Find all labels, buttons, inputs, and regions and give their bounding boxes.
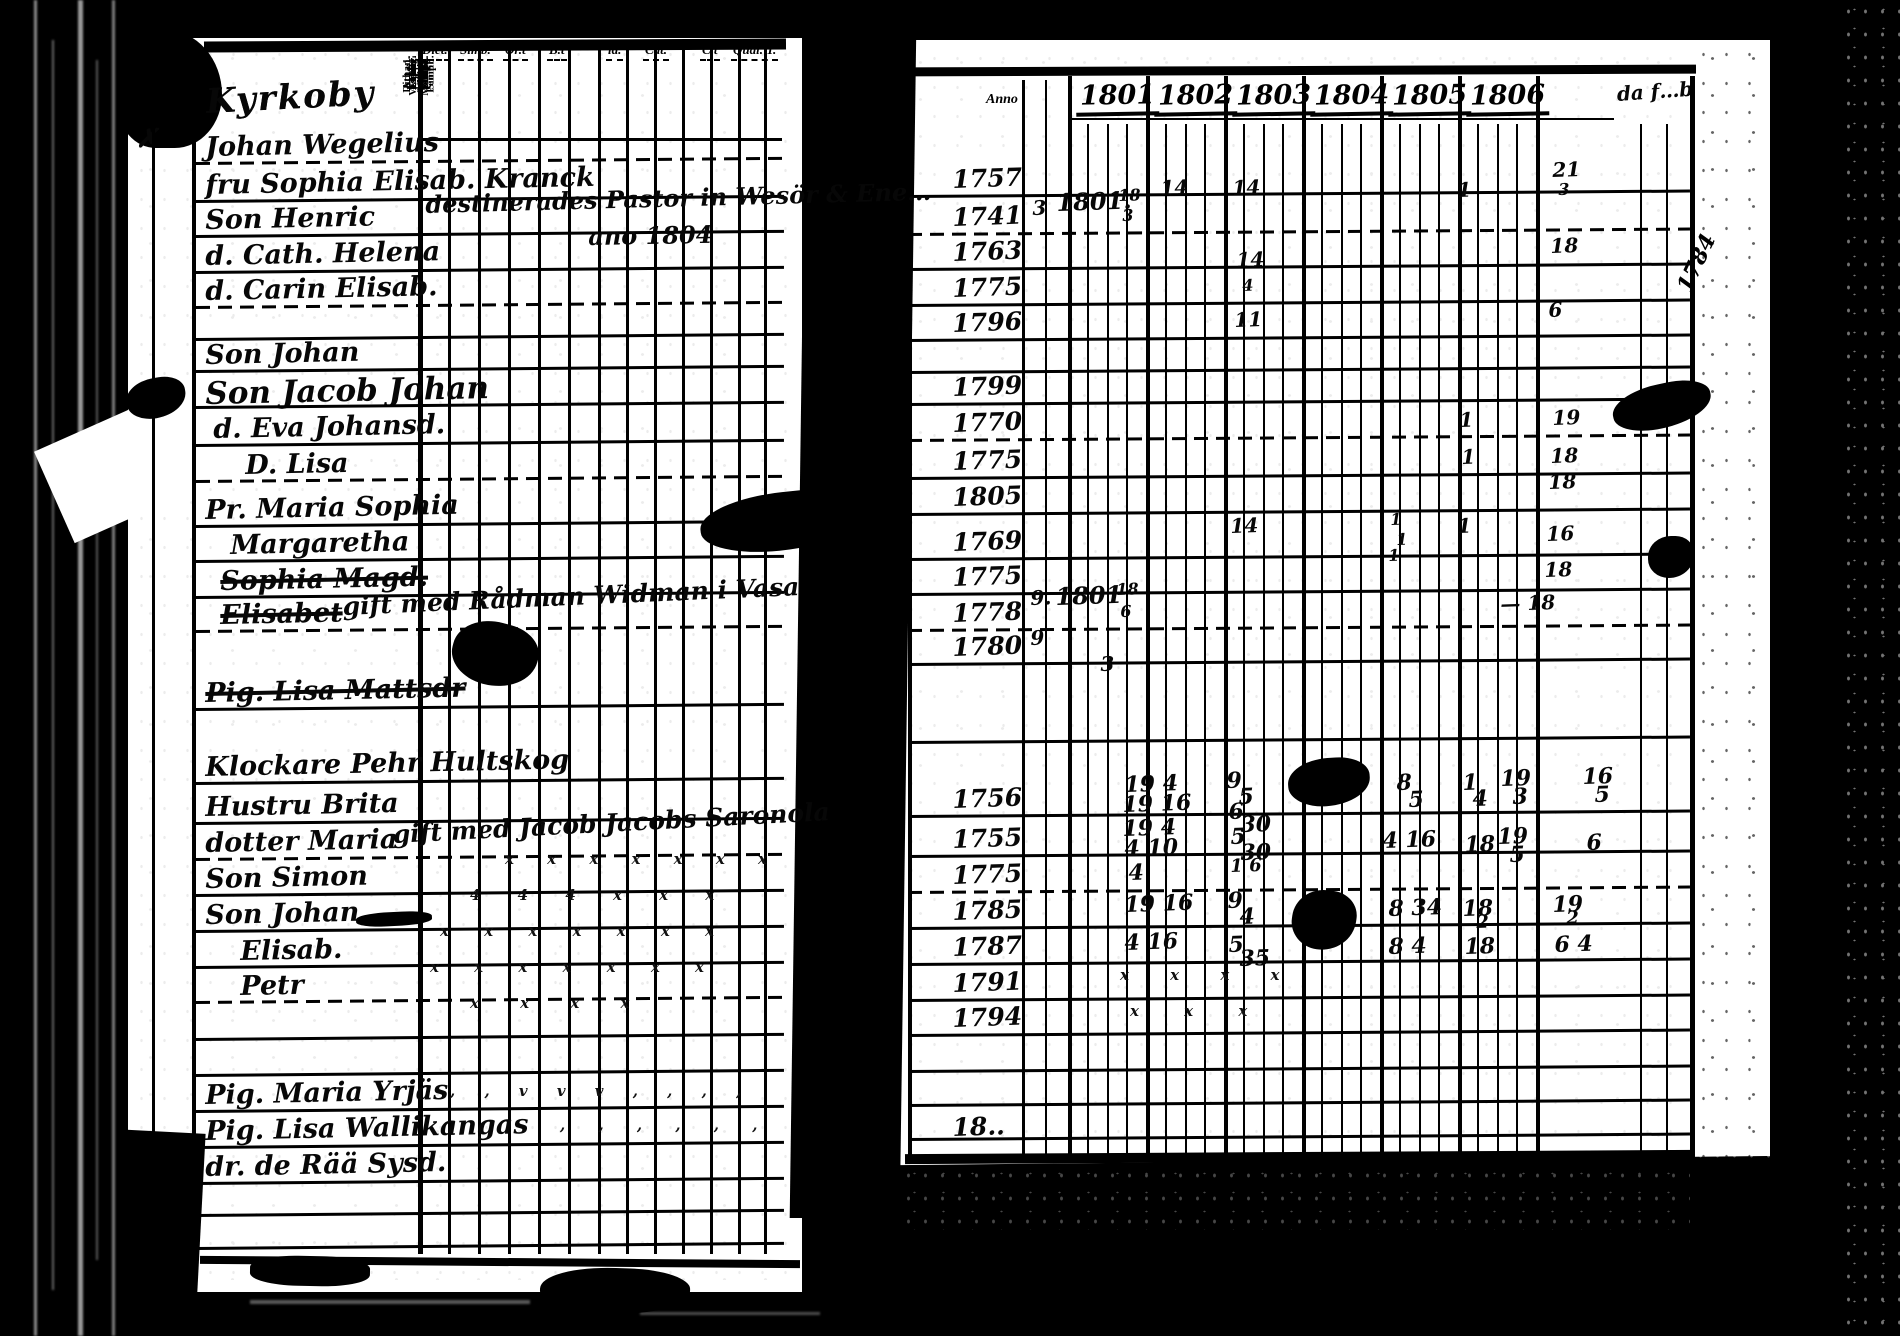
- ledger-mark: 4: [1239, 903, 1255, 930]
- ledger-mark: 18: [1116, 579, 1139, 599]
- birth-year: 1775: [952, 859, 1023, 890]
- ledger-mark: 5: [1408, 786, 1424, 813]
- row-rule-right: [908, 334, 1690, 342]
- row-rule-right: [908, 508, 1690, 516]
- row-rule-right: [908, 1065, 1690, 1073]
- ledger-mark: 6: [1120, 602, 1132, 621]
- household-row-name: Elisab.: [240, 934, 343, 967]
- birth-year: 1775: [952, 445, 1023, 476]
- column-line: [1666, 124, 1668, 1158]
- year-sub-line: [1399, 124, 1401, 1158]
- ink-layer: Dict.Simb.Or.tB.tlä.Cat.C.tQual. T.18011…: [0, 0, 1900, 1336]
- check-marks: x x x x: [470, 994, 647, 1012]
- ledger-mark: 16: [1546, 521, 1575, 546]
- row-rule-left: [196, 1242, 784, 1250]
- birth-year: 1799: [952, 371, 1023, 402]
- year-sub-line: [1126, 124, 1128, 1158]
- birth-year: 1787: [952, 931, 1023, 962]
- year-sub-line: [1360, 124, 1362, 1158]
- row-rule-right: [908, 658, 1690, 666]
- ledger-mark: 6: [1548, 298, 1563, 322]
- ledger-mark: 18: [1548, 469, 1577, 494]
- birth-year: 1794: [952, 1002, 1023, 1033]
- ledger-mark: 8 4: [1388, 933, 1427, 960]
- check-marks: x x x x x x x: [440, 922, 729, 940]
- row-rule-right: [908, 810, 1690, 818]
- ledger-mark: 4: [1128, 859, 1144, 886]
- check-marks: x x x x x x x: [505, 850, 781, 868]
- household-row-name: Petr: [240, 970, 304, 1002]
- household-row-name: Margaretha: [230, 526, 410, 561]
- birth-year: 1755: [952, 823, 1023, 854]
- ledger-mark: 3: [1512, 783, 1528, 810]
- ledger-mark: 19 16: [1122, 790, 1192, 818]
- year-sub-line: [1087, 124, 1089, 1158]
- household-row-name: Pr. Maria Sophia: [205, 490, 459, 526]
- birth-year: 1770: [952, 407, 1023, 438]
- household-row-name: Klockare Pehr Hultskog: [205, 744, 569, 783]
- check-marks: 4 4 4 x x x: [470, 886, 730, 904]
- row-rule-right: [908, 1133, 1690, 1141]
- column-line: [738, 48, 741, 1254]
- ledger-mark: 5: [1509, 841, 1525, 868]
- page-rule: [200, 1256, 800, 1268]
- ledger-mark: 35: [1239, 945, 1271, 972]
- check-marks: , , , , , ,: [560, 1116, 771, 1134]
- row-rule-right: [908, 624, 1690, 632]
- ledger-mark: 14: [1230, 513, 1259, 538]
- ledger-mark: 1: [1457, 514, 1472, 538]
- check-marks: x x x: [1130, 1002, 1267, 1020]
- margin-line: [152, 60, 155, 1258]
- year-sub-line: [1497, 124, 1499, 1158]
- check-marks: , , v v v , , , ,: [450, 1082, 753, 1100]
- ledger-mark: 19 16: [1124, 890, 1194, 918]
- ledger-mark: — 18: [1500, 590, 1556, 616]
- year-sub-line: [1419, 124, 1421, 1158]
- row-rule-left: [196, 1069, 784, 1077]
- ledger-mark: 18: [1550, 443, 1579, 468]
- birth-year: 1757: [952, 163, 1023, 194]
- row-rule-left: [196, 1209, 784, 1217]
- row-rule-left: [196, 333, 784, 341]
- household-row-name: d. Eva Johansd.: [213, 409, 445, 445]
- row-rule-right: [908, 958, 1690, 966]
- year-sub-line: [1516, 124, 1518, 1158]
- household-row-name: dr. de Rää Sysd.: [205, 1147, 447, 1183]
- page-rule: [905, 65, 1696, 77]
- ledger-mark: 1 6: [1230, 855, 1262, 877]
- row-rule-right: [908, 553, 1690, 561]
- year-header: 1806: [1466, 79, 1550, 116]
- year-sub-line: [1321, 124, 1323, 1158]
- ledger-mark: 6 4: [1554, 931, 1593, 958]
- ledger-mark: 11: [1234, 307, 1263, 332]
- ledger-mark: 4 16: [1124, 928, 1178, 956]
- column-line: [764, 48, 767, 1254]
- ledger-mark: 4 16: [1382, 826, 1436, 854]
- microfilm-scan: Kyrkoby ✗ Anno da f…b Explic. Simpl.Atha…: [0, 0, 1900, 1336]
- page-rule: [204, 38, 786, 52]
- year-header: 1801: [1076, 79, 1160, 116]
- row-rule-right: [908, 190, 1690, 198]
- household-row-name: Kyrkoby: [205, 73, 376, 122]
- birth-year: 1791: [952, 967, 1023, 998]
- ledger-mark: 1801: [1055, 580, 1123, 611]
- check-marks: x x x x x x x: [430, 958, 719, 976]
- ledger-mark: 1: [1459, 408, 1474, 432]
- ledger-mark: 1: [1457, 178, 1472, 202]
- birth-year: 1775: [952, 272, 1023, 303]
- ledger-mark: 19: [1552, 405, 1581, 430]
- household-row-name: dotter Maria: [205, 824, 398, 859]
- ledger-mark: 3: [1558, 180, 1570, 199]
- row-rule-right: [908, 299, 1690, 307]
- ledger-mark: 18: [1464, 831, 1496, 858]
- ledger-mark: 1: [1388, 546, 1400, 565]
- ledger-mark: 18: [1550, 233, 1579, 258]
- ledger-mark: 4: [1472, 785, 1488, 812]
- birth-year: 1778: [952, 597, 1023, 628]
- ledger-mark: 2: [1566, 908, 1579, 929]
- ledger-mark: 21: [1552, 157, 1581, 182]
- birth-year: 1775: [952, 561, 1023, 592]
- ledger-mark: 2: [1476, 912, 1489, 933]
- household-row-name: Hustru Brita: [205, 788, 399, 823]
- year-sub-line: [1282, 124, 1284, 1158]
- row-rule-right: [908, 994, 1690, 1002]
- row-rule-right: [908, 1029, 1690, 1037]
- household-row-name: Son Johan: [205, 337, 360, 371]
- margin-line: [192, 50, 196, 1262]
- row-rule-right: [908, 434, 1690, 442]
- household-row-name: d. Cath. Helena: [205, 236, 440, 272]
- year-header: 1803: [1232, 79, 1316, 116]
- year-sub-line: [1107, 124, 1109, 1158]
- year-sub-line: [1477, 124, 1479, 1158]
- year-group-line: [1224, 76, 1228, 1158]
- row-rule-right: [908, 736, 1690, 744]
- row-rule-right: [908, 850, 1690, 858]
- household-row-name: d. Carin Elisab.: [205, 271, 438, 307]
- handwritten-annotation: ano 1804: [588, 220, 713, 251]
- ledger-mark: 4: [1242, 276, 1254, 295]
- ledger-mark: 1: [1390, 510, 1402, 529]
- household-row-name: Son Johan: [205, 897, 360, 931]
- birth-year: 1780: [952, 631, 1023, 662]
- ledger-mark: 3: [1032, 196, 1047, 220]
- ledger-mark: 3: [1100, 652, 1115, 676]
- ledger-mark: 14: [1236, 247, 1265, 272]
- ledger-mark: 9: [1030, 626, 1045, 650]
- birth-year: 1769: [952, 526, 1023, 557]
- ledger-mark: 1: [1461, 445, 1476, 469]
- household-row-name: Johan Wegelius: [205, 127, 439, 163]
- birth-year: 1763: [952, 236, 1023, 267]
- row-rule-right: [908, 263, 1690, 271]
- year-header: 1802: [1154, 79, 1238, 116]
- row-rule-right: [908, 588, 1690, 596]
- birth-year: 1741: [952, 201, 1023, 232]
- row-rule-right: [908, 1099, 1690, 1107]
- ledger-mark: 14: [1160, 175, 1189, 200]
- ledger-mark: 18: [1464, 933, 1496, 960]
- ledger-mark: 18: [1118, 185, 1141, 205]
- column-line: [1640, 124, 1642, 1158]
- year-group-line: [1068, 76, 1072, 1158]
- year-sub-line: [1438, 124, 1440, 1158]
- ledger-mark: 9.: [1030, 585, 1052, 610]
- household-row-name: Pig. Maria Yrjäs: [205, 1075, 449, 1111]
- household-row-name: Pig. Lisa Mattsdr: [205, 673, 466, 709]
- ledger-mark: 14: [1232, 175, 1261, 200]
- year-sub-line: [1341, 124, 1343, 1158]
- household-row-name: Son Henric: [205, 201, 375, 236]
- ledger-mark: 5: [1594, 781, 1610, 808]
- year-header: 1804: [1310, 79, 1394, 116]
- birth-year: 1796: [952, 307, 1023, 338]
- ledger-mark: 3: [1122, 206, 1134, 225]
- row-rule-left: [196, 1033, 784, 1041]
- column-line: [1045, 80, 1047, 1158]
- household-row-name: Elisabet: [220, 597, 343, 631]
- ledger-mark: 6: [1586, 829, 1602, 856]
- household-row-name: Son Simon: [205, 861, 368, 895]
- birth-year: 1805: [952, 481, 1023, 512]
- check-marks: x x x x: [1120, 966, 1297, 984]
- ledger-mark: 8 34: [1388, 894, 1442, 922]
- ledger-mark: 18: [1544, 557, 1573, 582]
- year-group-line: [1146, 76, 1150, 1158]
- household-row-name: D. Lisa: [245, 448, 349, 481]
- row-rule-right: [908, 366, 1690, 374]
- year-header: 1805: [1388, 79, 1472, 116]
- ledger-mark: 4 10: [1124, 834, 1178, 862]
- birth-year: 1785: [952, 895, 1023, 926]
- birth-year: 1756: [952, 783, 1023, 814]
